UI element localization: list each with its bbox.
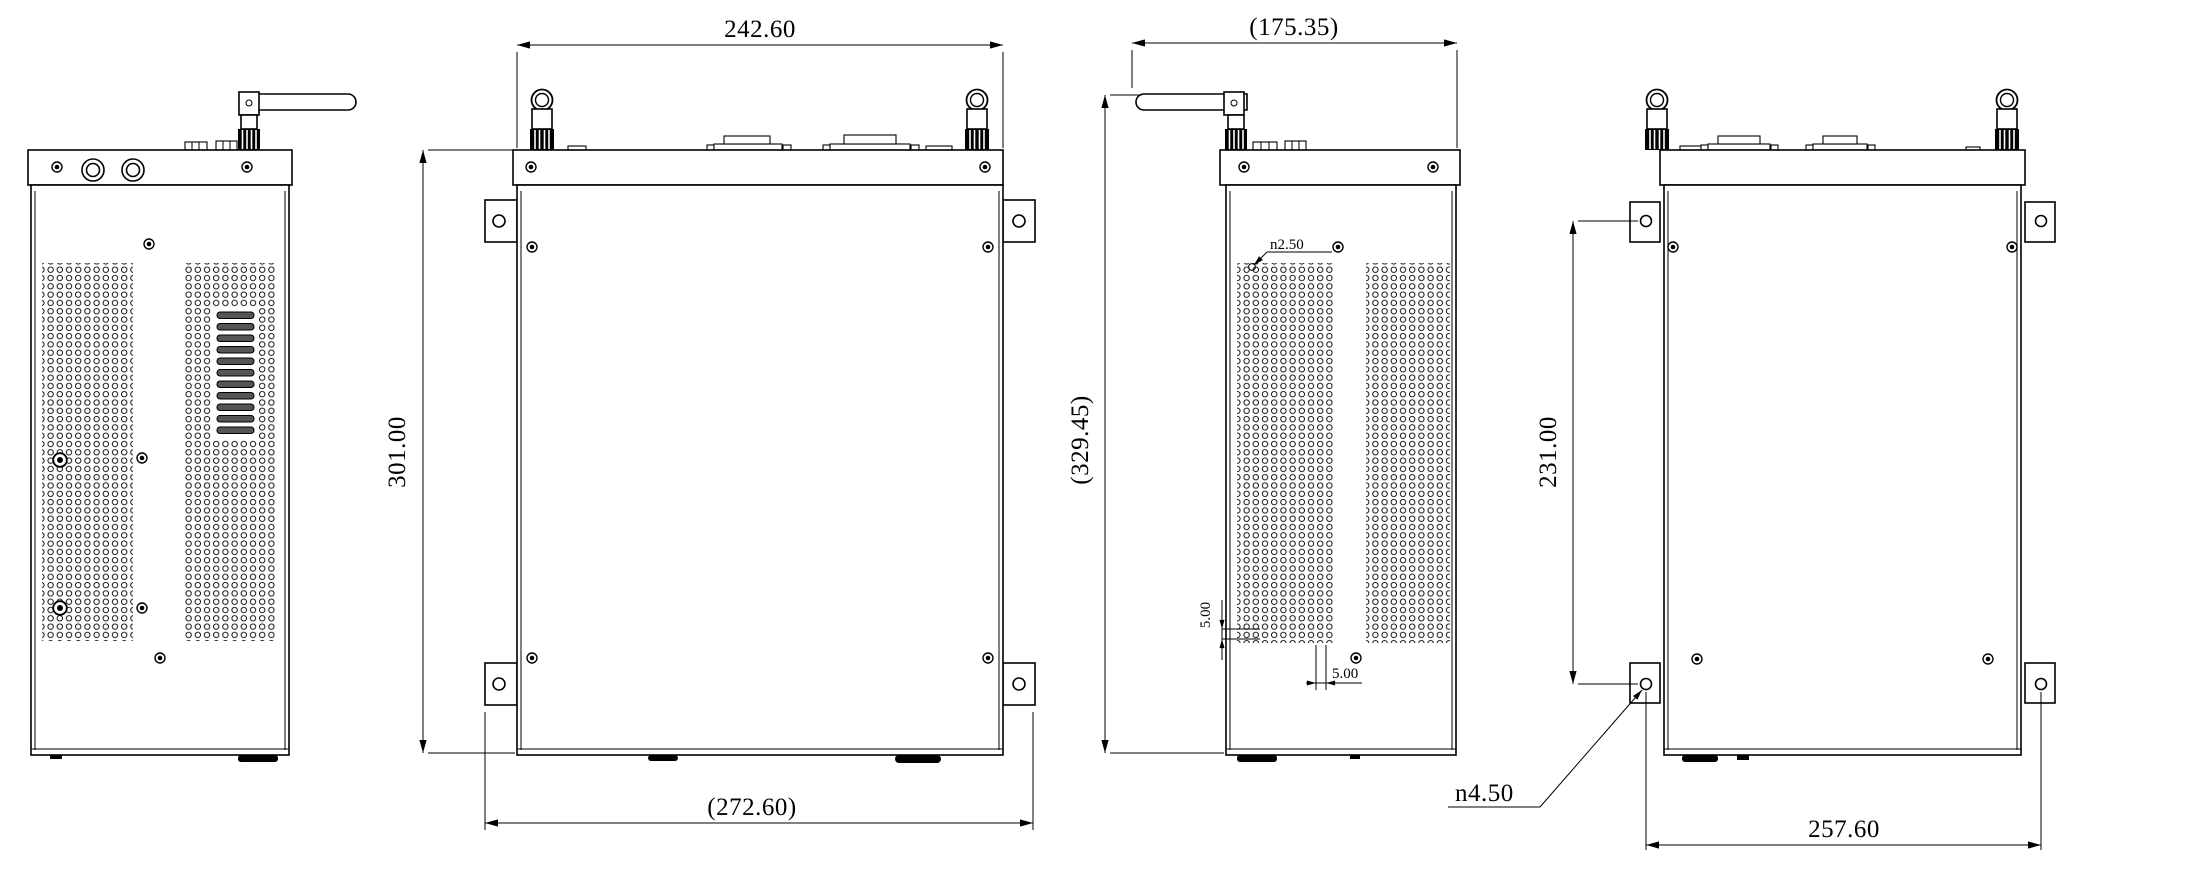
drawing-sheet: 242.60 301.00 (272.60) (175.3 — [0, 0, 2198, 872]
top-cap — [1220, 150, 1460, 185]
antenna-connector — [530, 90, 554, 151]
foot — [895, 755, 941, 763]
screw — [53, 453, 67, 467]
dim-label: 242.60 — [724, 16, 796, 43]
callout-label: n2.50 — [1270, 237, 1304, 253]
technical-drawing: 242.60 301.00 (272.60) (175.3 — [0, 0, 2198, 872]
antenna — [1136, 92, 1247, 150]
foot — [50, 755, 62, 759]
vent-grid-left — [42, 263, 133, 641]
foot — [238, 755, 278, 762]
screw — [527, 242, 537, 252]
screw — [983, 653, 993, 663]
screw — [1239, 162, 1249, 172]
dim-rear-mount-vertical: 231.00 — [1535, 221, 1638, 684]
screw — [52, 162, 62, 172]
screw — [155, 653, 165, 663]
top-cap — [1660, 150, 2025, 185]
top-connectors — [568, 135, 952, 150]
mount-hole — [1641, 679, 1652, 690]
screw — [1351, 653, 1361, 663]
screw — [137, 453, 147, 463]
dim-label: 5.00 — [1198, 602, 1214, 628]
screw — [526, 162, 536, 172]
top-connectors — [1253, 141, 1306, 150]
mount-hole — [2036, 679, 2047, 690]
screw — [53, 601, 67, 615]
dim-side-height: (329.45) — [1067, 95, 1224, 753]
dim-label: 257.60 — [1808, 816, 1880, 843]
callout-mount-hole-diameter: n4.50 — [1448, 688, 1644, 807]
screw — [1692, 654, 1702, 664]
antenna-connector — [1995, 90, 2019, 151]
screw — [1668, 242, 1678, 252]
rear-panel — [1664, 185, 2021, 755]
view-left-side — [28, 92, 356, 762]
callout-label: n4.50 — [1455, 780, 1514, 807]
view-rear — [1630, 90, 2055, 763]
vent-slots — [213, 308, 259, 440]
foot — [1237, 755, 1277, 762]
mount-hole — [493, 215, 505, 227]
mount-hole — [1013, 215, 1025, 227]
front-panel — [517, 185, 1003, 755]
foot — [1350, 755, 1360, 759]
foot — [648, 755, 678, 761]
antenna — [238, 92, 356, 150]
view-front — [485, 90, 1035, 764]
vent-grid-left — [1237, 263, 1333, 643]
vent-grid-right — [1366, 263, 1450, 643]
dim-front-width: 242.60 — [517, 16, 1003, 148]
screw — [242, 162, 252, 172]
top-connectors — [185, 141, 237, 150]
antenna-connector — [965, 90, 989, 151]
mount-hole — [493, 678, 505, 690]
dim-label: 301.00 — [384, 416, 411, 488]
dim-label: 231.00 — [1535, 416, 1562, 488]
dim-label: (175.35) — [1249, 14, 1338, 41]
antenna-connector — [1645, 90, 1669, 151]
dim-label: 5.00 — [1332, 666, 1358, 682]
dim-label: (329.45) — [1067, 395, 1094, 484]
screw — [983, 242, 993, 252]
top-connectors — [1680, 136, 1980, 150]
screw — [1983, 654, 1993, 664]
screw — [144, 239, 154, 249]
view-right-side — [1136, 92, 1460, 762]
mount-hole — [1641, 216, 1652, 227]
foot — [1682, 755, 1718, 762]
screw — [1333, 242, 1343, 252]
mount-hole — [2036, 216, 2047, 227]
mount-hole — [1013, 678, 1025, 690]
foot — [1737, 755, 1749, 760]
top-cap — [513, 150, 1003, 185]
screw — [2007, 242, 2017, 252]
dim-label: (272.60) — [707, 794, 796, 821]
screw — [980, 162, 990, 172]
screw — [527, 653, 537, 663]
dim-side-depth: (175.35) — [1132, 14, 1457, 148]
screw — [137, 603, 147, 613]
screw — [1428, 162, 1438, 172]
